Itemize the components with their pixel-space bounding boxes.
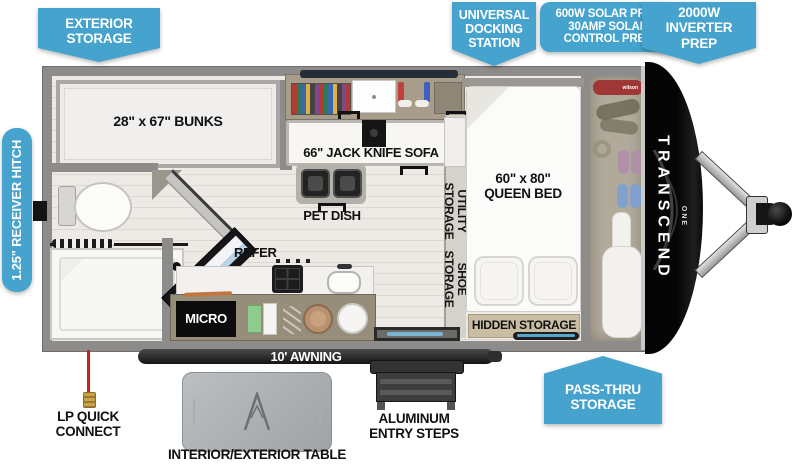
shoe-storage-text: SHOE STORAGE <box>442 246 468 312</box>
table-logo-svg <box>239 392 275 432</box>
cap-brand: TRANSCEND <box>648 70 678 346</box>
microwave: MICRO <box>176 301 236 337</box>
lp-hose <box>87 350 90 394</box>
cabinet-button-2 <box>415 100 429 107</box>
stove-knobs <box>276 259 312 263</box>
table-logo <box>239 392 275 432</box>
step-2 <box>380 390 452 395</box>
refer-label-text: REFER <box>234 245 277 260</box>
cabinet-button-1 <box>398 100 412 107</box>
floorplan-diagram: 28" x 67" BUNKS REFER 66" JACK KNIFE SOF… <box>0 0 800 465</box>
game-controller-blue <box>424 82 430 102</box>
bunks-label-text: 28" x 67" BUNKS <box>113 114 222 129</box>
game-controller-red <box>398 82 404 102</box>
gear-shoe-2a <box>617 184 628 208</box>
callout-exterior-storage-text: EXTERIOR STORAGE <box>56 16 142 46</box>
callout-solar-line3: CONTROL PREP <box>564 33 653 46</box>
round-board-center <box>310 311 326 327</box>
tv-soundbar <box>300 70 458 78</box>
shower-pan-inner <box>59 257 175 331</box>
pet-dish-1-bowl <box>308 176 323 191</box>
utensil-specks <box>283 306 301 334</box>
stove <box>272 265 303 293</box>
callout-exterior-storage: EXTERIOR STORAGE <box>38 8 160 62</box>
brand-series-text: ONE <box>681 205 688 226</box>
pet-dish-2 <box>333 169 362 198</box>
step-leg-1 <box>377 402 385 410</box>
callout-pass-thru-text: PASS-THRU STORAGE <box>563 382 643 412</box>
faucet <box>337 264 352 269</box>
callout-universal-docking-box: UNIVERSAL DOCKING STATION <box>452 2 536 66</box>
entry-steps-label: ALUMINUM ENTRY STEPS <box>364 412 464 442</box>
callout-pass-thru: PASS-THRU STORAGE <box>544 356 662 424</box>
step-1 <box>380 379 452 384</box>
pillow-2-seam <box>534 262 572 300</box>
sofa-table-dot <box>370 129 378 137</box>
bunks-label: 28" x 67" BUNKS <box>66 110 270 134</box>
callout-solar-line2: 30AMP SOLAR <box>568 21 647 34</box>
cap-series: ONE <box>676 198 692 234</box>
sofa-label: 66" JACK KNIFE SOFA <box>288 146 454 160</box>
sink <box>327 271 361 294</box>
table-mark-left <box>193 399 195 425</box>
callout-inverter-prep-text: 2000W INVERTER PREP <box>660 5 738 50</box>
callout-universal-docking-text: UNIVERSAL DOCKING STATION <box>458 8 530 50</box>
pillow-1 <box>474 256 524 306</box>
cutting-board-white <box>263 303 277 335</box>
hidden-storage-tray <box>513 332 579 340</box>
callout-receiver-hitch-text: 1.25" RECEIVER HITCH <box>10 140 25 281</box>
entry-door-accent <box>387 332 443 336</box>
hidden-storage-tray-accent <box>517 334 575 337</box>
table-label: INTERIOR/EXTERIOR TABLE <box>152 448 362 463</box>
gear-bat-bag: wilson <box>593 80 643 95</box>
hidden-storage-text: HIDDEN STORAGE <box>472 319 576 332</box>
pet-dish-label-text: PET DISH <box>303 208 361 223</box>
sofa-label-text: 66" JACK KNIFE SOFA <box>303 145 439 160</box>
lp-quick-connect-text: LP QUICK CONNECT <box>56 409 121 439</box>
awning-end-knob <box>488 351 502 362</box>
portable-table <box>182 372 332 452</box>
gear-shoe-2b <box>630 184 641 208</box>
sofa-table <box>362 120 386 147</box>
callout-inverter-prep-box: 2000W INVERTER PREP <box>642 2 756 64</box>
step-leg-2 <box>447 402 455 410</box>
queen-bed-name: QUEEN BED <box>468 187 578 202</box>
tv-panel-dot <box>372 95 376 99</box>
gear-rope <box>593 140 611 158</box>
entry-steps-body <box>376 372 456 402</box>
plate <box>337 303 368 334</box>
callout-exterior-storage-box: EXTERIOR STORAGE <box>38 8 160 62</box>
bathroom-top-wall <box>46 163 158 172</box>
queen-bed-dim: 60" x 80" <box>468 172 578 187</box>
lp-quick-connect-label: LP QUICK CONNECT <box>38 410 138 440</box>
sidewall-port <box>33 201 47 221</box>
entry-door-mat <box>374 327 460 341</box>
hitch-ball <box>768 202 792 226</box>
bed-corner-fold <box>467 87 509 129</box>
cutting-board-green <box>247 305 262 333</box>
pet-dish-2-bowl <box>340 176 355 191</box>
microwave-label: MICRO <box>185 312 227 326</box>
awning-label: 10' AWNING <box>250 349 362 364</box>
gear-shoe-1a <box>618 150 629 174</box>
callout-universal-docking: UNIVERSAL DOCKING STATION <box>452 2 536 66</box>
sofa-foot-top-1 <box>338 111 360 119</box>
pillow-2 <box>528 256 578 306</box>
sofa-foot-2 <box>400 166 428 175</box>
toilet-bowl <box>74 182 132 232</box>
gear-case-body <box>602 246 642 338</box>
table-mark-right <box>319 399 321 425</box>
pet-dish-label: PET DISH <box>296 209 368 223</box>
awning-label-text: 10' AWNING <box>270 349 341 364</box>
callout-pass-thru-box: PASS-THRU STORAGE <box>544 356 662 424</box>
entry-steps-text: ALUMINUM ENTRY STEPS <box>369 411 459 441</box>
callout-receiver-hitch-box: 1.25" RECEIVER HITCH <box>2 128 32 292</box>
pillow-1-seam <box>480 262 518 300</box>
cabinet-vent <box>434 82 462 114</box>
lp-fitting <box>83 392 96 408</box>
callout-inverter-prep: 2000W INVERTER PREP <box>642 2 756 64</box>
round-board <box>303 304 333 334</box>
callout-receiver-hitch: 1.25" RECEIVER HITCH <box>2 128 32 292</box>
queen-bed-label: 60" x 80" QUEEN BED <box>468 172 578 202</box>
table-label-text: INTERIOR/EXTERIOR TABLE <box>168 447 346 462</box>
stove-grate <box>275 268 300 290</box>
brand-name-text: TRANSCEND <box>654 135 672 280</box>
tv-panel <box>352 80 396 113</box>
shower-curtain <box>52 239 114 248</box>
gear-bag-brand: wilson <box>622 85 638 91</box>
pet-dish-1 <box>301 169 330 198</box>
